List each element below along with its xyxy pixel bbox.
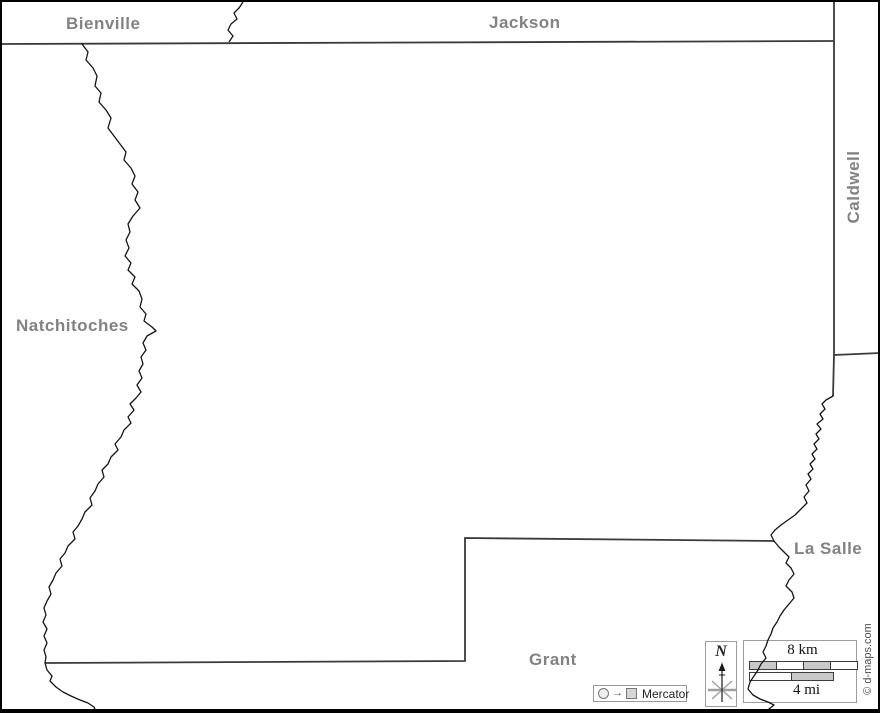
region-label-la-salle: La Salle [794,539,862,559]
projection-arrow-icon: → [612,688,623,699]
scale-bar-mi-segment [750,673,791,680]
projection-box: → Mercator [593,685,687,702]
scale-bar-km-segment [803,662,830,669]
region-label-bienville: Bienville [66,14,140,34]
north-boundary-line [0,41,834,44]
parish-boundary-linework [0,0,880,713]
east-boundary-line [833,2,834,396]
globe-circle-icon [598,688,609,699]
compass-box: N [705,641,737,707]
scale-bar-km-segment [776,662,803,669]
copyright-credit: © d-maps.com [862,617,874,701]
scale-bar-km-segment [750,662,776,669]
scale-km-label: 8 km [749,642,856,659]
compass-rose-icon [706,642,738,708]
map-canvas: Bienville Jackson Caldwell Natchitoches … [0,0,880,713]
region-label-grant: Grant [529,650,577,670]
scale-bar-km-segment [830,662,857,669]
scale-box: 8 km 4 mi [743,640,857,703]
south-boundary-line [45,538,774,663]
bienville-jackson-boundary [228,2,243,42]
projected-square-icon [626,688,637,699]
west-river-boundary [43,44,156,712]
scale-mi-label: 4 mi [764,682,849,699]
scale-bar-km [749,661,858,670]
scale-bar-mi-segment [791,673,833,680]
caldwell-lasalle-boundary [834,353,880,355]
region-label-jackson: Jackson [489,13,561,33]
map-frame-border [0,0,880,713]
scale-bar-mi [749,672,834,681]
region-label-caldwell: Caldwell [844,141,864,233]
projection-name: Mercator [642,687,689,701]
region-label-natchitoches: Natchitoches [16,316,129,336]
